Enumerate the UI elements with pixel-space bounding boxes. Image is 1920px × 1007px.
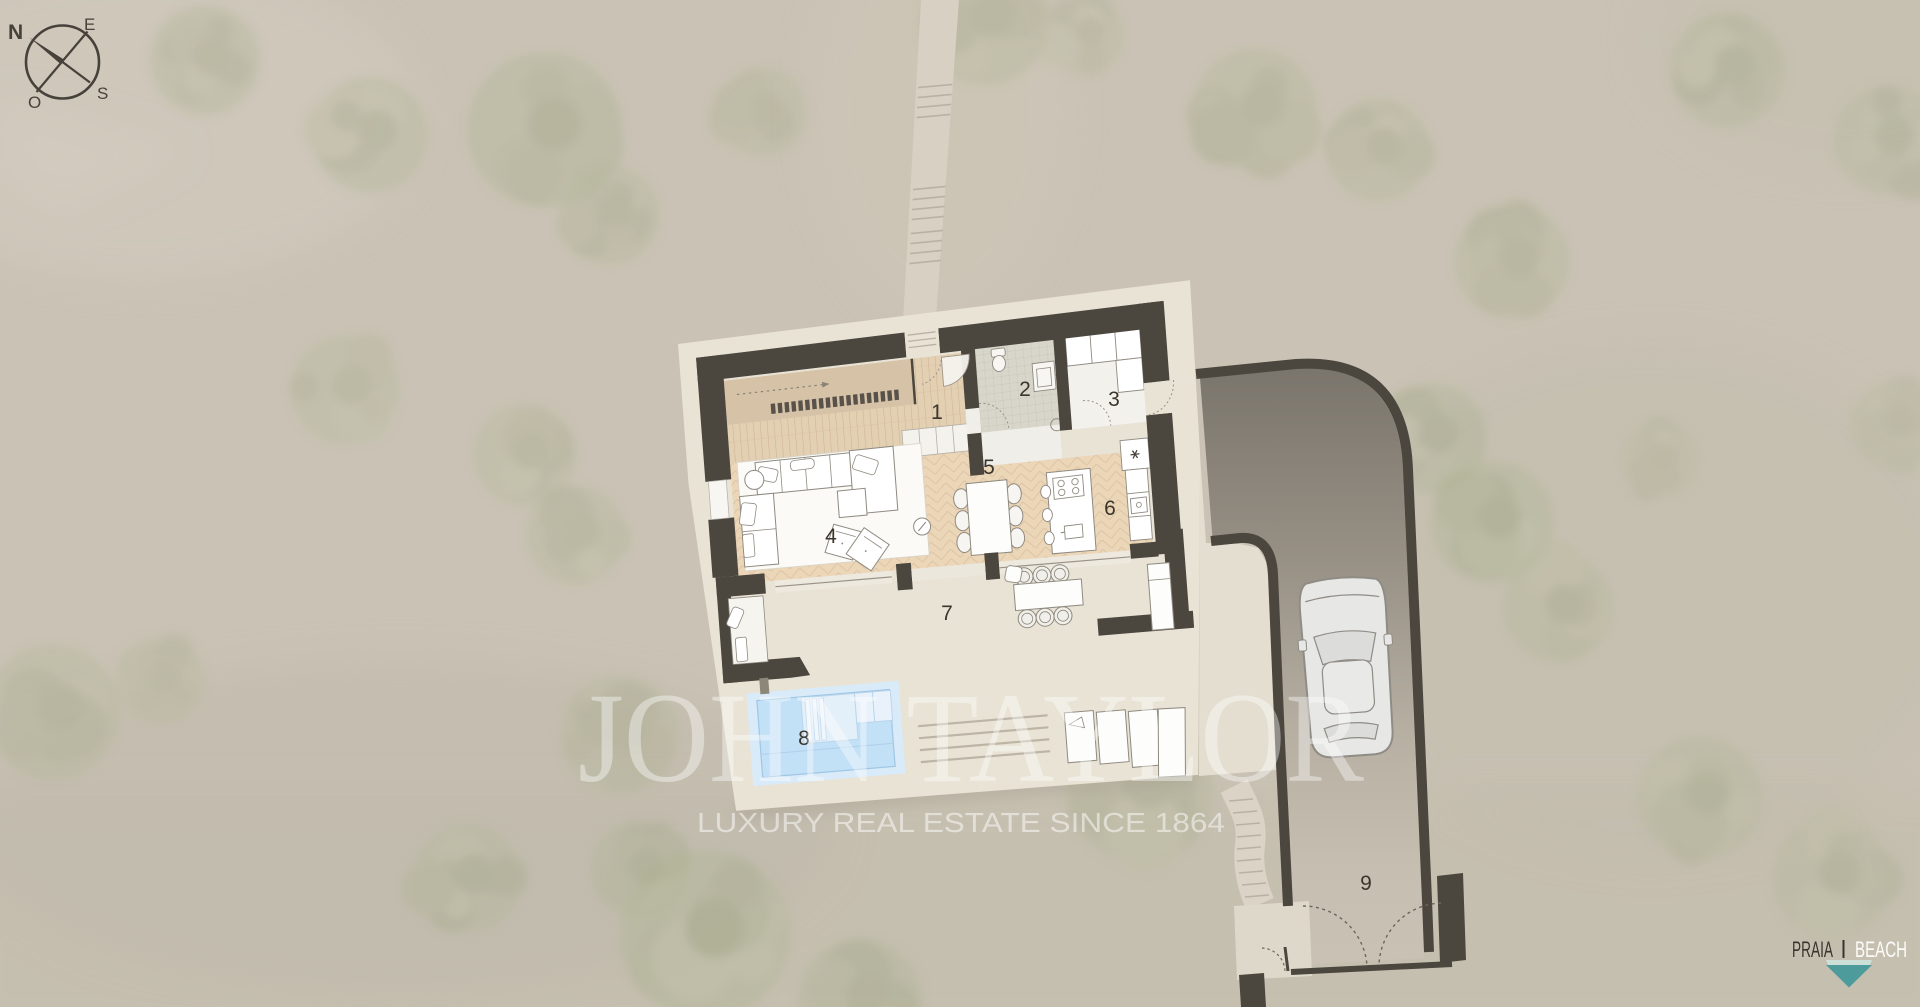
svg-text:O: O <box>28 93 41 112</box>
svg-text:5: 5 <box>983 456 995 479</box>
svg-text:2: 2 <box>1019 378 1031 401</box>
svg-text:7: 7 <box>941 602 953 625</box>
svg-text:PRAIA: PRAIA <box>1792 937 1833 962</box>
svg-text:LUXURY REAL ESTATE SINCE 1864: LUXURY REAL ESTATE SINCE 1864 <box>697 807 1225 838</box>
svg-text:3: 3 <box>1108 388 1120 411</box>
svg-text:4: 4 <box>825 525 837 548</box>
svg-text:N: N <box>8 21 23 44</box>
svg-text:S: S <box>97 84 108 103</box>
svg-text:6: 6 <box>1104 497 1116 520</box>
svg-text:E: E <box>84 15 95 34</box>
svg-text:BEACH: BEACH <box>1855 937 1907 962</box>
svg-text:1: 1 <box>931 401 943 424</box>
svg-text:9: 9 <box>1360 872 1372 895</box>
svg-text:JOHN TAYLOR: JOHN TAYLOR <box>578 667 1365 809</box>
